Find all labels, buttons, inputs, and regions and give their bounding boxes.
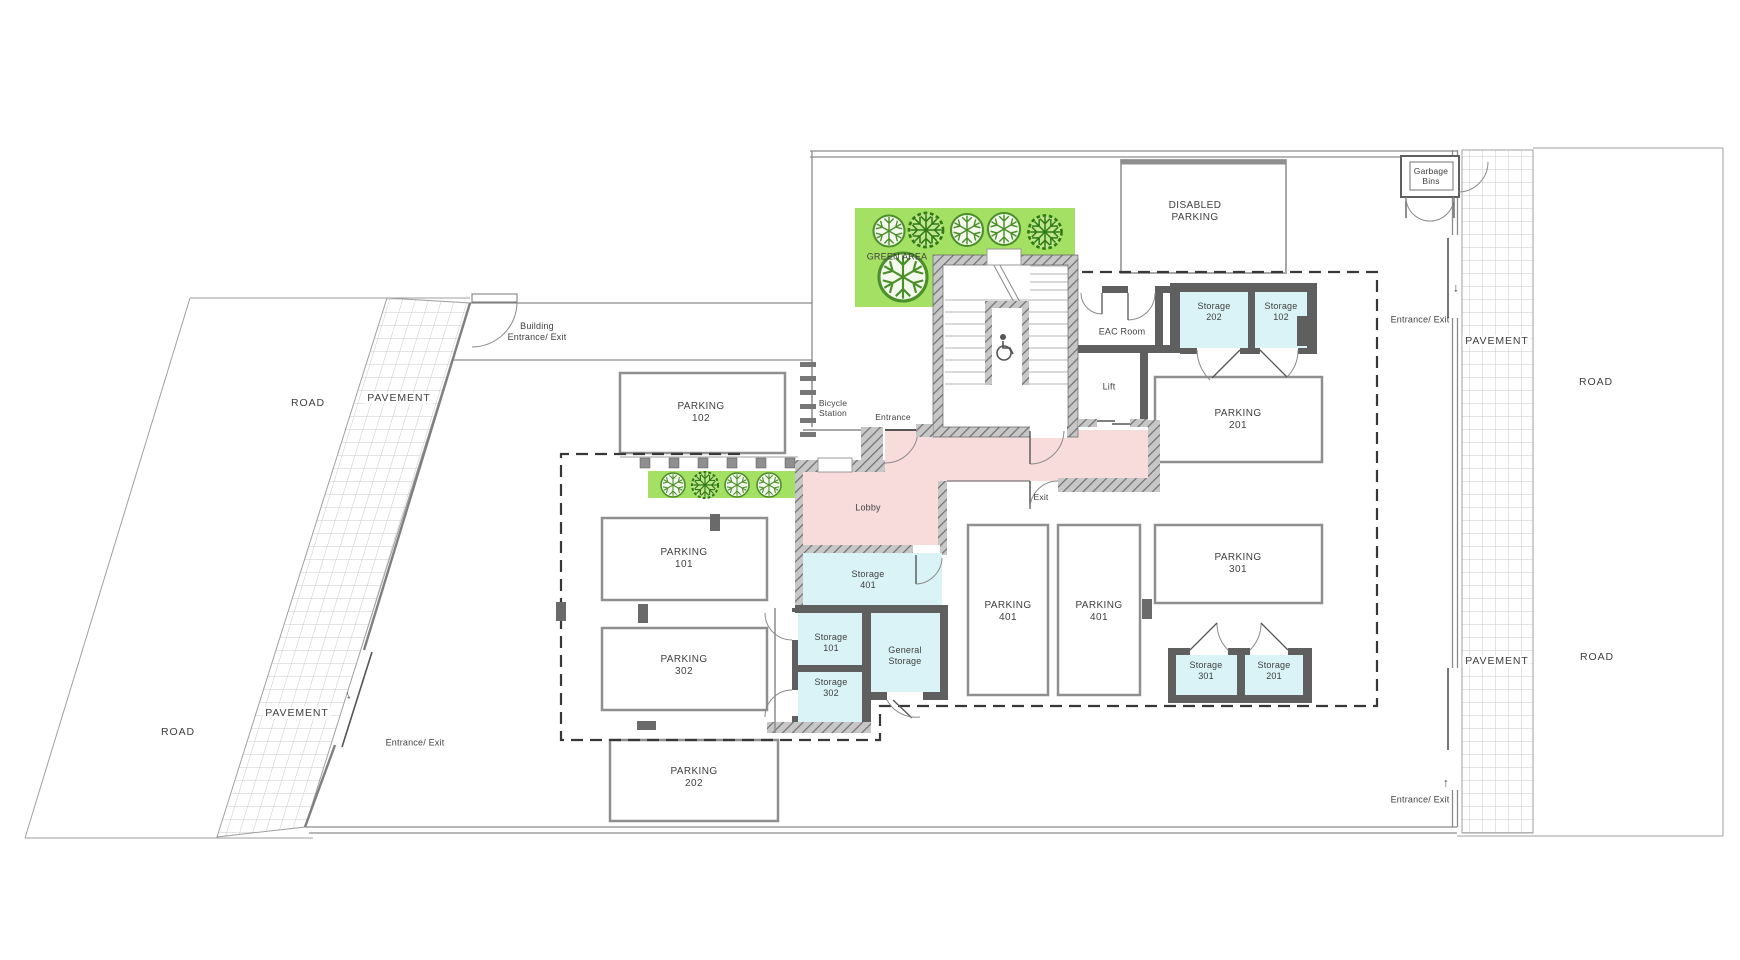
building-entrance-exit-label: Building Entrance/ Exit — [508, 321, 567, 343]
road-label: ROAD — [1579, 376, 1613, 388]
parking-202-label: PARKING 202 — [670, 766, 717, 790]
garbage-bins-label: Garbage Bins — [1414, 166, 1448, 186]
storage-301-label: Storage 301 — [1190, 660, 1223, 682]
arrow-up-icon: ↑ — [1443, 778, 1449, 789]
general-storage-door-leaf — [893, 700, 912, 718]
door-arc — [1197, 350, 1210, 380]
arrow-down-icon: ↓ — [1453, 283, 1459, 294]
door-arc — [1287, 350, 1298, 377]
tree-icon — [909, 213, 943, 247]
road-label: ROAD — [1580, 651, 1614, 663]
pavement-label: PAVEMENT — [262, 707, 331, 719]
storage-302-label: Storage 302 — [815, 677, 848, 699]
door-arc — [1081, 293, 1102, 314]
entrance-exit-label: Entrance/ Exit — [386, 738, 445, 749]
road-label: ROAD — [161, 726, 195, 738]
plan-drawing — [0, 0, 1740, 960]
storage-101-label: Storage 101 — [815, 632, 848, 654]
door-arc — [1217, 623, 1228, 650]
tree-icon — [725, 473, 749, 497]
green-strip — [620, 457, 798, 498]
entrance-exit-label: Entrance/ Exit — [1391, 795, 1450, 806]
storage-401-label: Storage 401 — [852, 569, 885, 591]
storage-202-label: Storage 202 — [1198, 301, 1231, 323]
parking-301-label: PARKING 301 — [1214, 552, 1261, 576]
tree-icon — [874, 216, 905, 247]
parking-102-label: PARKING 102 — [677, 401, 724, 425]
bicycle-station-label: Bicycle Station — [819, 398, 847, 418]
tree-icon — [988, 213, 1020, 245]
door-arc — [1430, 197, 1454, 221]
general-storage-label: General Storage — [888, 645, 921, 667]
door-arc — [1128, 293, 1155, 320]
tree-icon — [951, 214, 983, 246]
exit-label: Exit — [1034, 492, 1049, 502]
eac-room — [1078, 286, 1180, 353]
entrance-label: Entrance — [875, 412, 911, 422]
pavement-label: PAVEMENT — [1462, 335, 1531, 347]
parking-401-label: PARKING 401 — [1075, 600, 1122, 624]
eac-room-label: EAC Room — [1099, 327, 1146, 338]
fence-posts — [640, 458, 795, 468]
storage-202-102-block — [1170, 283, 1317, 380]
entrance-exit-label: Entrance/ Exit — [1391, 315, 1450, 326]
parking-302-label: PARKING 302 — [660, 654, 707, 678]
road-label: ROAD — [291, 397, 325, 409]
pavement-label: PAVEMENT — [1462, 655, 1531, 667]
lift-door — [1097, 421, 1130, 424]
left-pavement-grid — [217, 298, 470, 837]
lobby-label: Lobby — [855, 503, 881, 514]
parking-401-label: PARKING 401 — [984, 600, 1031, 624]
parking-101-label: PARKING 101 — [660, 547, 707, 571]
disabled-parking-label: DISABLED PARKING — [1169, 200, 1222, 224]
stairwell — [933, 249, 1078, 464]
tree-icon — [692, 472, 718, 498]
green-area-label: GREEN AREA — [867, 252, 928, 263]
door-arc — [765, 613, 792, 640]
lobby-window — [818, 458, 852, 472]
door-arc — [765, 690, 792, 717]
door-arc — [887, 700, 920, 717]
floor-plan: ROAD PAVEMENT ROAD PAVEMENT Entrance/ Ex… — [0, 0, 1740, 960]
bicycle-rack-icon — [800, 362, 816, 437]
right-pavement-grid — [1462, 150, 1533, 833]
tree-icon — [1029, 216, 1062, 249]
lift-label: Lift — [1103, 382, 1116, 393]
storage-201-label: Storage 201 — [1258, 660, 1291, 682]
door-arc — [1406, 197, 1430, 221]
tree-icon — [661, 473, 685, 497]
parking-201-label: PARKING 201 — [1214, 408, 1261, 432]
tree-icon — [757, 473, 781, 497]
pavement-label: PAVEMENT — [364, 392, 433, 404]
stair-top-window — [987, 249, 1021, 265]
door-arc — [1250, 623, 1261, 650]
storage-102-label: Storage 102 — [1265, 301, 1298, 323]
